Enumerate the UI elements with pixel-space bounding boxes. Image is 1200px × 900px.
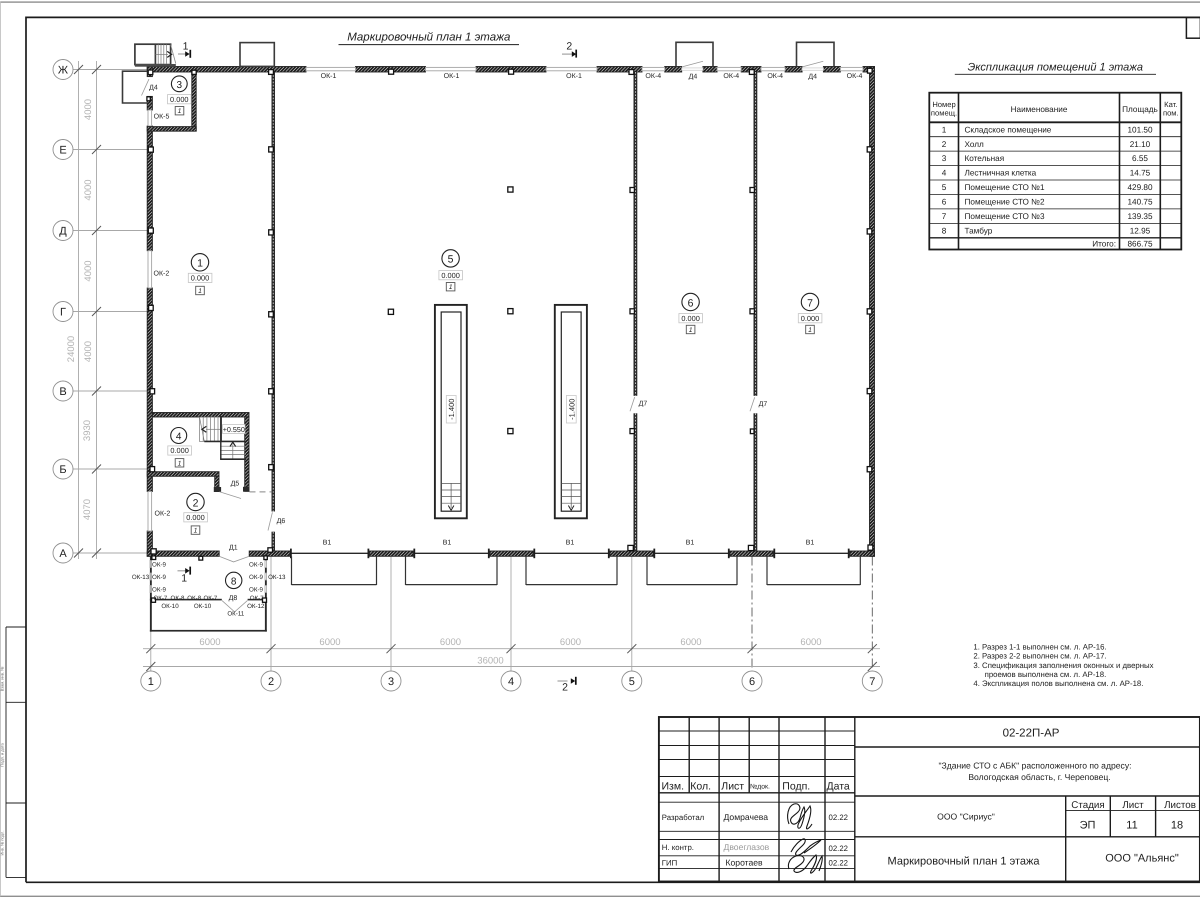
svg-text:В1: В1 xyxy=(806,540,815,547)
svg-text:Д4: Д4 xyxy=(149,85,158,92)
svg-text:ОК-9: ОК-9 xyxy=(152,574,166,581)
svg-text:7: 7 xyxy=(942,212,947,221)
svg-text:0.000: 0.000 xyxy=(170,95,189,104)
svg-text:4000: 4000 xyxy=(83,99,94,120)
svg-text:Двоеглазов: Двоеглазов xyxy=(724,842,770,852)
svg-text:Тамбур: Тамбур xyxy=(965,227,993,236)
svg-text:ОК-4: ОК-4 xyxy=(847,73,863,80)
svg-text:ОК-2: ОК-2 xyxy=(154,271,170,278)
svg-text:Взам. инв. №: Взам. инв. № xyxy=(0,666,5,691)
svg-text:Наименование: Наименование xyxy=(1011,105,1068,114)
svg-text:8: 8 xyxy=(942,227,947,236)
svg-text:6000: 6000 xyxy=(440,637,461,648)
svg-text:0.000: 0.000 xyxy=(170,446,189,455)
svg-text:6: 6 xyxy=(749,676,755,688)
svg-text:6000: 6000 xyxy=(319,637,340,648)
svg-text:429.80: 429.80 xyxy=(1127,183,1152,192)
svg-text:ОК-10: ОК-10 xyxy=(161,603,179,610)
svg-text:2: 2 xyxy=(942,140,947,149)
svg-text:0.000: 0.000 xyxy=(191,274,210,283)
svg-text:ОК-9: ОК-9 xyxy=(249,562,263,569)
svg-text:1: 1 xyxy=(449,284,453,291)
svg-text:Д: Д xyxy=(59,226,67,238)
svg-text:Помещение СТО №2: Помещение СТО №2 xyxy=(965,198,1045,207)
svg-text:2. Разрез 2-2 выполнен см. л.: 2. Разрез 2-2 выполнен см. л. АР-17. xyxy=(973,652,1106,661)
svg-text:В1: В1 xyxy=(686,540,695,547)
svg-text:4: 4 xyxy=(508,676,514,688)
svg-text:1: 1 xyxy=(178,108,182,115)
svg-text:Г: Г xyxy=(60,307,66,319)
svg-text:2: 2 xyxy=(562,682,568,694)
svg-text:Итого:: Итого: xyxy=(1092,240,1116,249)
svg-text:Е: Е xyxy=(59,145,66,157)
svg-text:Подп.: Подп. xyxy=(782,780,810,792)
svg-text:21.10: 21.10 xyxy=(1130,140,1151,149)
svg-text:Экспликация помещений 1 этажа: Экспликация помещений 1 этажа xyxy=(968,62,1143,74)
svg-text:Инв. № подл.: Инв. № подл. xyxy=(0,831,5,856)
svg-text:Лестничная клетка: Лестничная клетка xyxy=(965,169,1037,178)
svg-text:проемов выполнена см. л. АР-18: проемов выполнена см. л. АР-18. xyxy=(985,670,1107,679)
svg-text:02.22: 02.22 xyxy=(829,859,849,868)
svg-text:Д4: Д4 xyxy=(689,74,698,81)
svg-text:1: 1 xyxy=(808,327,812,334)
svg-text:0.000: 0.000 xyxy=(681,314,700,323)
svg-text:Изм.: Изм. xyxy=(662,780,685,792)
svg-text:1. Разрез 1-1 выполнен см. л.: 1. Разрез 1-1 выполнен см. л. АР-16. xyxy=(973,642,1106,651)
svg-text:5: 5 xyxy=(448,254,454,266)
svg-text:ОК-9: ОК-9 xyxy=(249,587,263,594)
svg-text:Помещение СТО №3: Помещение СТО №3 xyxy=(965,212,1045,221)
svg-text:6: 6 xyxy=(942,198,947,207)
svg-text:5: 5 xyxy=(942,183,947,192)
svg-text:Д1: Д1 xyxy=(229,545,238,552)
svg-text:+0.550: +0.550 xyxy=(223,425,245,434)
svg-text:Складское помещение: Складское помещение xyxy=(965,125,1052,134)
svg-text:12.95: 12.95 xyxy=(1130,227,1151,236)
svg-text:ОК-8: ОК-8 xyxy=(187,595,201,602)
svg-text:139.35: 139.35 xyxy=(1127,212,1152,221)
svg-text:Д4: Д4 xyxy=(808,74,817,81)
svg-text:7: 7 xyxy=(869,676,875,688)
svg-text:ООО "Альянс": ООО "Альянс" xyxy=(1105,853,1179,865)
svg-text:0.000: 0.000 xyxy=(801,314,820,323)
svg-text:А: А xyxy=(59,548,67,560)
svg-text:-1.400: -1.400 xyxy=(567,399,576,420)
svg-text:ОК-9: ОК-9 xyxy=(152,562,166,569)
svg-text:4: 4 xyxy=(942,169,947,178)
svg-text:В: В xyxy=(59,386,66,398)
svg-text:36000: 36000 xyxy=(477,656,503,667)
svg-text:ОК-9: ОК-9 xyxy=(249,574,263,581)
svg-text:Вологодская область, г. Черепо: Вологодская область, г. Череповец. xyxy=(968,772,1110,782)
svg-text:1: 1 xyxy=(178,460,182,467)
svg-text:ОК-7: ОК-7 xyxy=(153,595,167,602)
svg-text:3930: 3930 xyxy=(82,420,93,441)
svg-text:1: 1 xyxy=(181,573,187,585)
svg-text:14.75: 14.75 xyxy=(1130,169,1151,178)
svg-text:ОК-11: ОК-11 xyxy=(227,610,244,617)
svg-text:ЭП: ЭП xyxy=(1080,820,1096,832)
svg-text:4: 4 xyxy=(176,432,182,443)
svg-text:4000: 4000 xyxy=(83,341,94,362)
svg-text:В1: В1 xyxy=(566,540,575,547)
svg-text:1: 1 xyxy=(942,125,947,134)
svg-text:Подп. и дата: Подп. и дата xyxy=(0,742,5,766)
svg-text:ОК-13: ОК-13 xyxy=(268,574,286,581)
svg-text:Площадь: Площадь xyxy=(1122,105,1158,114)
svg-text:Б: Б xyxy=(59,464,66,476)
svg-text:3. Спецификация заполнения око: 3. Спецификация заполнения оконных и две… xyxy=(973,661,1153,670)
svg-text:Ж: Ж xyxy=(58,65,68,77)
svg-text:ОК-8: ОК-8 xyxy=(171,595,185,602)
svg-text:02-22П-АР: 02-22П-АР xyxy=(1003,727,1060,739)
svg-text:ОК-9: ОК-9 xyxy=(152,587,166,594)
svg-text:ООО "Сириус": ООО "Сириус" xyxy=(937,812,995,822)
svg-text:Д8: Д8 xyxy=(229,595,238,602)
svg-text:2: 2 xyxy=(566,41,572,53)
svg-text:3: 3 xyxy=(942,154,947,163)
svg-text:2: 2 xyxy=(193,497,199,509)
svg-text:1: 1 xyxy=(689,327,693,334)
svg-text:866.75: 866.75 xyxy=(1127,240,1152,249)
svg-text:ОК-4: ОК-4 xyxy=(767,73,783,80)
svg-text:ОК-7: ОК-7 xyxy=(203,595,217,602)
svg-text:Д5: Д5 xyxy=(231,480,240,487)
svg-text:Холл: Холл xyxy=(965,140,985,149)
svg-text:6: 6 xyxy=(688,297,694,309)
svg-text:Дата: Дата xyxy=(827,780,850,792)
svg-text:Котельная: Котельная xyxy=(965,154,1005,163)
svg-text:Д7: Д7 xyxy=(639,401,648,408)
svg-text:1: 1 xyxy=(183,40,189,52)
svg-text:6000: 6000 xyxy=(560,637,581,648)
svg-text:18: 18 xyxy=(1171,820,1183,832)
svg-text:8: 8 xyxy=(231,577,237,588)
svg-text:6000: 6000 xyxy=(199,637,220,648)
svg-text:Маркировочный план 1 этажа: Маркировочный план 1 этажа xyxy=(888,856,1041,868)
svg-text:Н. контр.: Н. контр. xyxy=(662,843,694,852)
svg-text:-1.400: -1.400 xyxy=(447,399,456,420)
svg-text:5: 5 xyxy=(629,676,635,688)
svg-text:пом.: пом. xyxy=(1163,109,1179,118)
svg-text:ОК-1: ОК-1 xyxy=(566,73,582,80)
svg-text:ОК-1: ОК-1 xyxy=(444,73,460,80)
svg-text:Д6: Д6 xyxy=(277,518,286,525)
svg-text:1: 1 xyxy=(194,528,198,535)
svg-text:Листов: Листов xyxy=(1164,800,1196,811)
svg-text:3: 3 xyxy=(388,676,394,688)
svg-text:02.22: 02.22 xyxy=(829,844,849,853)
svg-text:101.50: 101.50 xyxy=(1127,125,1152,134)
svg-text:Д7: Д7 xyxy=(759,401,768,408)
svg-text:Лист: Лист xyxy=(1122,800,1144,811)
svg-text:02.22: 02.22 xyxy=(829,813,849,822)
svg-text:4000: 4000 xyxy=(83,260,94,281)
svg-text:В1: В1 xyxy=(443,540,452,547)
svg-text:ОК-10: ОК-10 xyxy=(194,603,212,610)
svg-text:2: 2 xyxy=(268,676,274,688)
svg-text:11: 11 xyxy=(1126,820,1137,832)
svg-text:1: 1 xyxy=(148,676,154,688)
svg-text:Кол.: Кол. xyxy=(690,780,711,792)
svg-text:Коротаев: Коротаев xyxy=(726,857,764,867)
svg-text:"Здание СТО с АБК" расположенн: "Здание СТО с АБК" расположенного по адр… xyxy=(938,760,1131,770)
svg-text:1: 1 xyxy=(197,258,203,270)
svg-text:Помещение СТО №1: Помещение СТО №1 xyxy=(965,183,1045,192)
svg-text:3: 3 xyxy=(177,80,183,91)
svg-text:ГИП: ГИП xyxy=(662,858,677,867)
svg-text:ОК-1: ОК-1 xyxy=(321,73,337,80)
svg-text:4070: 4070 xyxy=(82,499,93,520)
svg-text:ОК-4: ОК-4 xyxy=(645,73,661,80)
svg-text:ОК-7: ОК-7 xyxy=(250,595,264,602)
svg-text:ОК-5: ОК-5 xyxy=(154,113,170,120)
svg-text:24000: 24000 xyxy=(66,336,77,362)
svg-text:Лист: Лист xyxy=(721,780,744,792)
svg-text:6000: 6000 xyxy=(680,637,701,648)
svg-text:140.75: 140.75 xyxy=(1127,198,1152,207)
svg-text:0.000: 0.000 xyxy=(186,513,205,522)
svg-text:помещ.: помещ. xyxy=(931,109,957,118)
svg-text:ОК-2: ОК-2 xyxy=(155,510,171,517)
svg-text:Разработал: Разработал xyxy=(662,813,705,822)
svg-text:0.000: 0.000 xyxy=(441,271,460,280)
svg-text:№док.: №док. xyxy=(750,783,770,790)
svg-text:ОК-4: ОК-4 xyxy=(723,73,739,80)
svg-text:7: 7 xyxy=(807,297,813,309)
svg-text:ОК-12: ОК-12 xyxy=(247,603,265,610)
svg-text:Домрачева: Домрачева xyxy=(724,812,769,822)
svg-text:4. Экспликация полов выполнена: 4. Экспликация полов выполнена см. л. АР… xyxy=(973,679,1143,688)
svg-text:В1: В1 xyxy=(323,540,332,547)
svg-text:6000: 6000 xyxy=(800,637,821,648)
svg-text:Маркировочный план 1 этажа: Маркировочный план 1 этажа xyxy=(347,31,510,43)
svg-text:4000: 4000 xyxy=(83,179,94,200)
svg-text:6.55: 6.55 xyxy=(1132,154,1148,163)
svg-text:Стадия: Стадия xyxy=(1071,800,1104,811)
svg-text:1: 1 xyxy=(198,288,202,295)
svg-text:ОК-13: ОК-13 xyxy=(132,574,150,581)
